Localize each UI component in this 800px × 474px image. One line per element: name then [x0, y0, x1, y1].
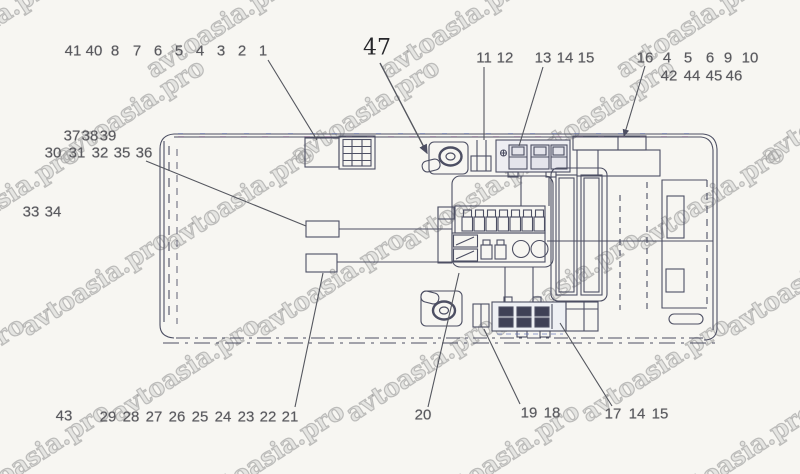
callout-label: 18	[544, 405, 561, 422]
callout-label: 17	[605, 406, 622, 423]
callout-label: 31	[69, 145, 86, 162]
callout-label: 22	[260, 409, 277, 426]
callout-label: 15	[652, 406, 669, 423]
callout-label: 27	[146, 409, 163, 426]
callout-label: 20	[415, 407, 432, 424]
callout-label: 26	[169, 409, 186, 426]
callout-label: 13	[535, 50, 552, 67]
callout-label: 40	[86, 43, 103, 60]
callout-label: 5	[684, 50, 692, 67]
callout-label: 12	[497, 50, 514, 67]
callout-label: 30	[45, 145, 62, 162]
callout-label: 6	[706, 50, 714, 67]
callout-label: 21	[282, 409, 299, 426]
callout-label: 25	[192, 409, 209, 426]
callout-label: 24	[215, 409, 232, 426]
callout-label: 8	[111, 43, 119, 60]
callout-label: 5	[175, 43, 183, 60]
callout-labels: 4140876543214711121314151645691042444546…	[0, 0, 800, 474]
callout-label: 28	[123, 409, 140, 426]
callout-label: 37	[64, 128, 81, 145]
scanned-diagram-page: avtoasia.proavtoasia.proavtoasia.proavto…	[0, 0, 800, 474]
callout-label: 3	[217, 43, 225, 60]
callout-label: 6	[154, 43, 162, 60]
callout-label: 1	[259, 43, 267, 60]
callout-label: 15	[578, 50, 595, 67]
callout-label: 14	[557, 50, 574, 67]
callout-label: 41	[65, 43, 82, 60]
callout-label: 16	[637, 50, 654, 67]
callout-label: 44	[684, 68, 701, 85]
callout-label: 14	[629, 406, 646, 423]
callout-label: 34	[45, 204, 62, 221]
callout-label: 32	[92, 145, 109, 162]
callout-label: 23	[238, 409, 255, 426]
callout-label: 11	[476, 50, 492, 67]
callout-label: 19	[521, 405, 538, 422]
callout-label: 9	[724, 50, 732, 67]
callout-label: 2	[238, 43, 246, 60]
callout-label: 10	[742, 50, 759, 67]
callout-label: 4	[196, 43, 204, 60]
callout-label: 45	[706, 68, 723, 85]
callout-label: 42	[661, 68, 678, 85]
callout-label: 46	[726, 68, 743, 85]
callout-label: 7	[133, 43, 141, 60]
callout-label: 38	[82, 128, 99, 145]
callout-label: 4	[663, 50, 671, 67]
callout-label: 47	[363, 36, 391, 61]
callout-label: 36	[136, 145, 153, 162]
callout-label: 35	[114, 145, 131, 162]
callout-label: 43	[56, 408, 73, 425]
callout-label: 29	[100, 409, 117, 426]
callout-label: 33	[23, 204, 40, 221]
callout-label: 39	[100, 128, 117, 145]
